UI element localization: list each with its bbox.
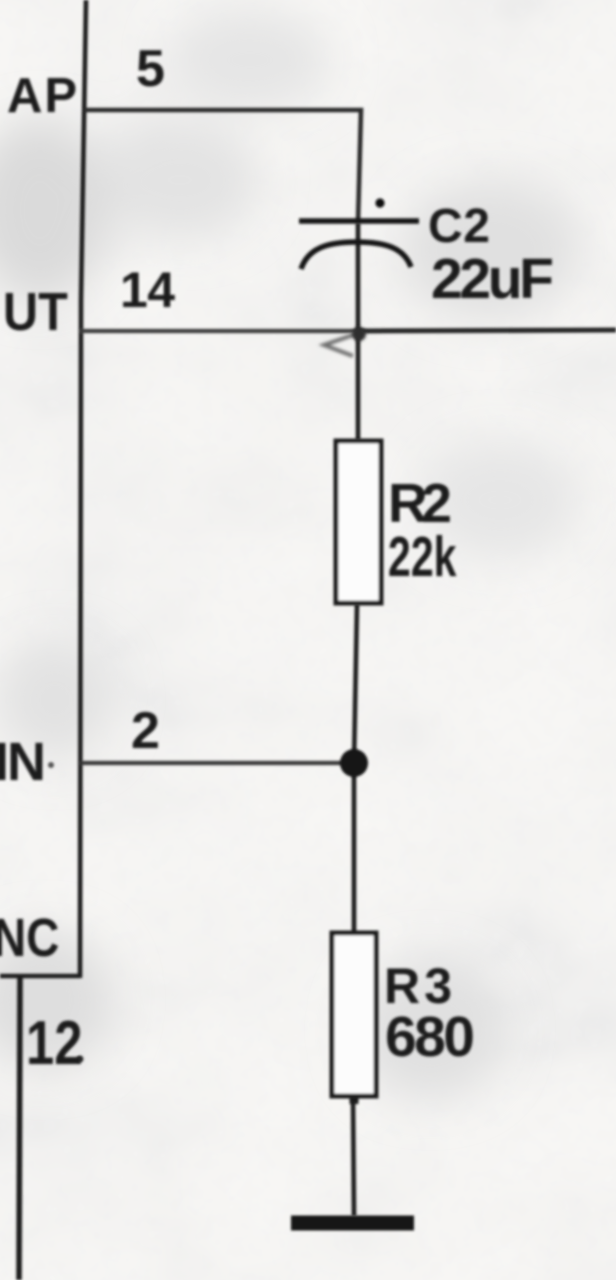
svg-text:2: 2 <box>131 702 160 760</box>
svg-text:12: 12 <box>26 1009 83 1078</box>
svg-text:14: 14 <box>120 262 175 318</box>
svg-text:IN: IN <box>0 732 46 792</box>
svg-text:22k: 22k <box>388 524 457 588</box>
svg-text:C2: C2 <box>428 200 490 253</box>
svg-text:UT: UT <box>3 281 68 342</box>
svg-text:22uF: 22uF <box>431 247 554 311</box>
svg-text:680: 680 <box>385 1005 475 1069</box>
svg-text:NC: NC <box>0 908 59 968</box>
svg-text:AP: AP <box>7 69 77 123</box>
svg-text:5: 5 <box>136 40 165 98</box>
